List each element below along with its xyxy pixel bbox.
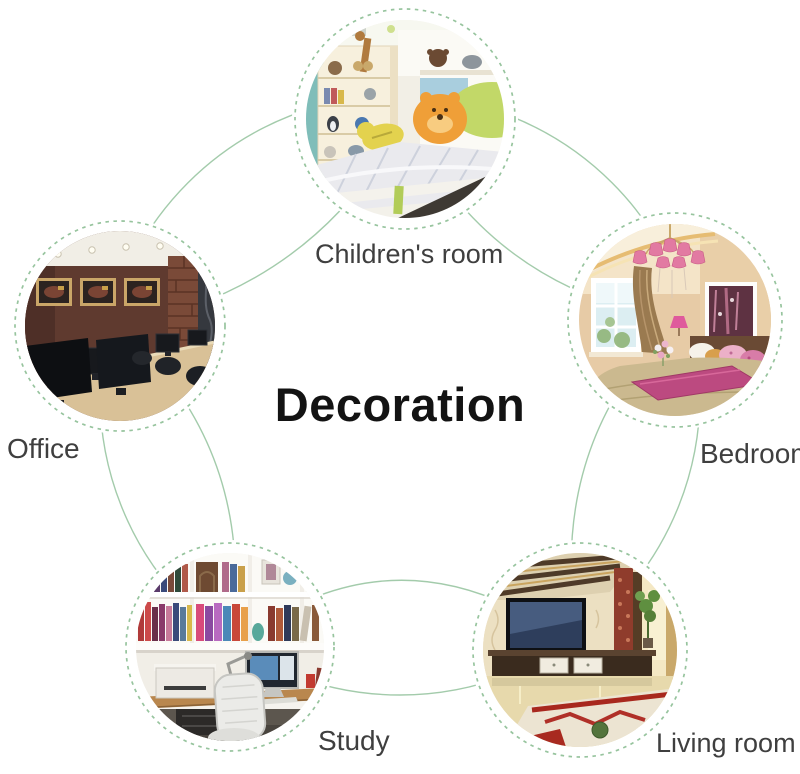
label-living-room: Living room bbox=[656, 728, 796, 759]
node-living-room bbox=[470, 540, 690, 760]
label-office: Office bbox=[7, 433, 80, 465]
node-study bbox=[123, 540, 337, 754]
decoration-diagram: Decoration Children's room Office Bedroo… bbox=[0, 0, 800, 774]
childrens-room-photo bbox=[306, 20, 534, 218]
label-study: Study bbox=[318, 725, 390, 757]
node-childrens-room bbox=[292, 6, 534, 232]
label-bedroom: Bedroom bbox=[700, 438, 800, 470]
diagram-title: Decoration bbox=[0, 377, 800, 432]
label-childrens-room: Children's room bbox=[315, 239, 503, 270]
living-room-photo bbox=[483, 553, 677, 747]
